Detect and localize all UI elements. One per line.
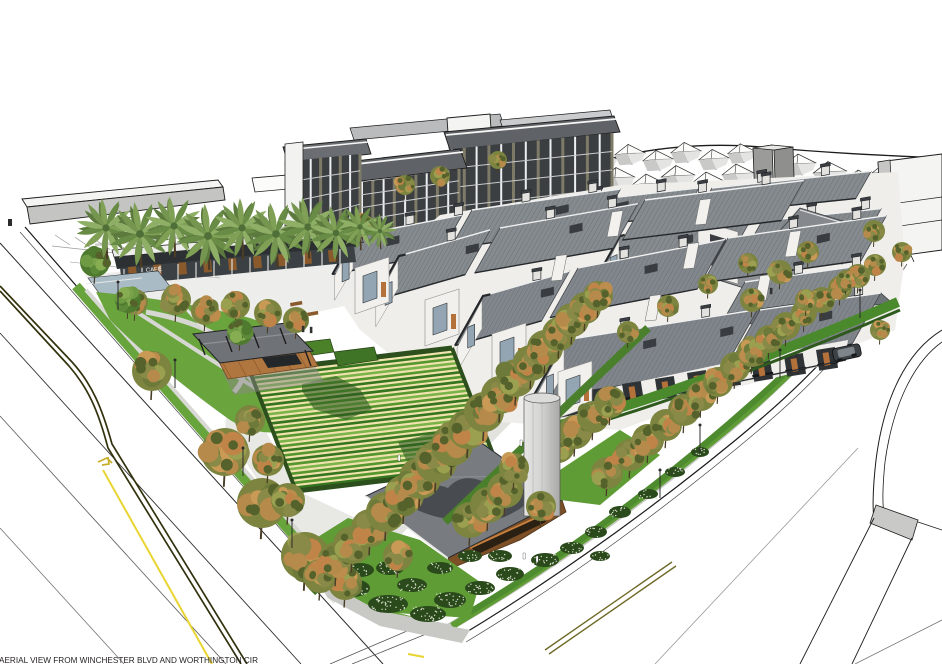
svg-text:AERIAL VIEW FROM WINCHESTER BL: AERIAL VIEW FROM WINCHESTER BLVD AND WOR… — [0, 656, 258, 664]
